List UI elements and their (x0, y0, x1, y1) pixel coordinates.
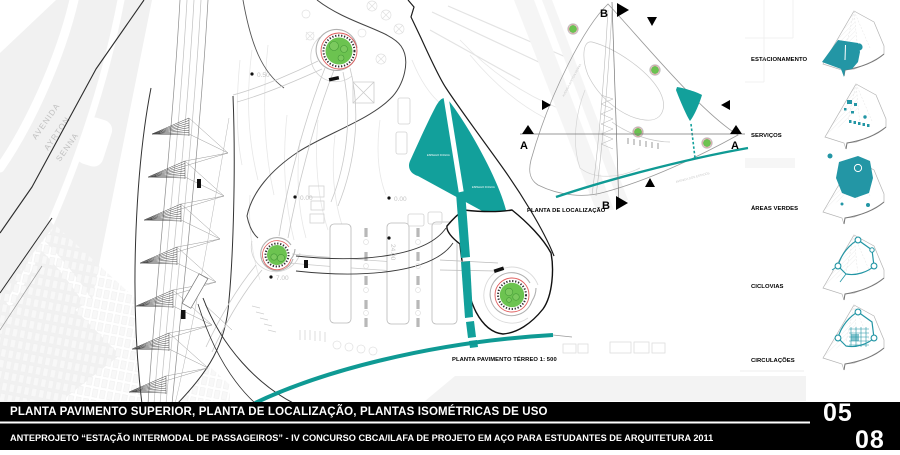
svg-text:ESPELHO D'AGUA: ESPELHO D'AGUA (472, 185, 495, 189)
svg-text:ESPELHO D'AGUA: ESPELHO D'AGUA (427, 153, 450, 157)
svg-text:B: B (600, 8, 608, 20)
svg-text:SERVIÇOS: SERVIÇOS (751, 133, 782, 139)
svg-text:A: A (731, 140, 739, 152)
svg-text:ESTACIONAMENTO: ESTACIONAMENTO (751, 57, 807, 63)
svg-text:ÁREAS VERDES: ÁREAS VERDES (751, 205, 798, 212)
svg-text:CICLOVIAS: CICLOVIAS (751, 284, 784, 290)
svg-text:7.00: 7.00 (276, 275, 289, 282)
svg-text:CIRCULAÇÕES: CIRCULAÇÕES (751, 357, 795, 364)
svg-text:0.00: 0.00 (300, 195, 313, 202)
svg-text:05: 05 (823, 399, 853, 427)
svg-text:ANTEPROJETO “ESTAÇÃO INTERMODA: ANTEPROJETO “ESTAÇÃO INTERMODAL DE PASSA… (10, 433, 713, 443)
svg-text:24.00: 24.00 (389, 244, 396, 261)
svg-text:A: A (520, 140, 528, 152)
svg-text:PLANTA PAVIMENTO TÉRREO 1: 500: PLANTA PAVIMENTO TÉRREO 1: 500 (452, 355, 557, 363)
svg-text:PLANTA PAVIMENTO SUPERIOR, PLA: PLANTA PAVIMENTO SUPERIOR, PLANTA DE LOC… (10, 405, 548, 418)
svg-text:PLANTA DE LOCALIZAÇÃO: PLANTA DE LOCALIZAÇÃO (527, 207, 606, 214)
svg-text:08: 08 (855, 426, 885, 450)
svg-text:0.50: 0.50 (257, 72, 270, 79)
svg-text:0.00: 0.00 (394, 196, 407, 203)
